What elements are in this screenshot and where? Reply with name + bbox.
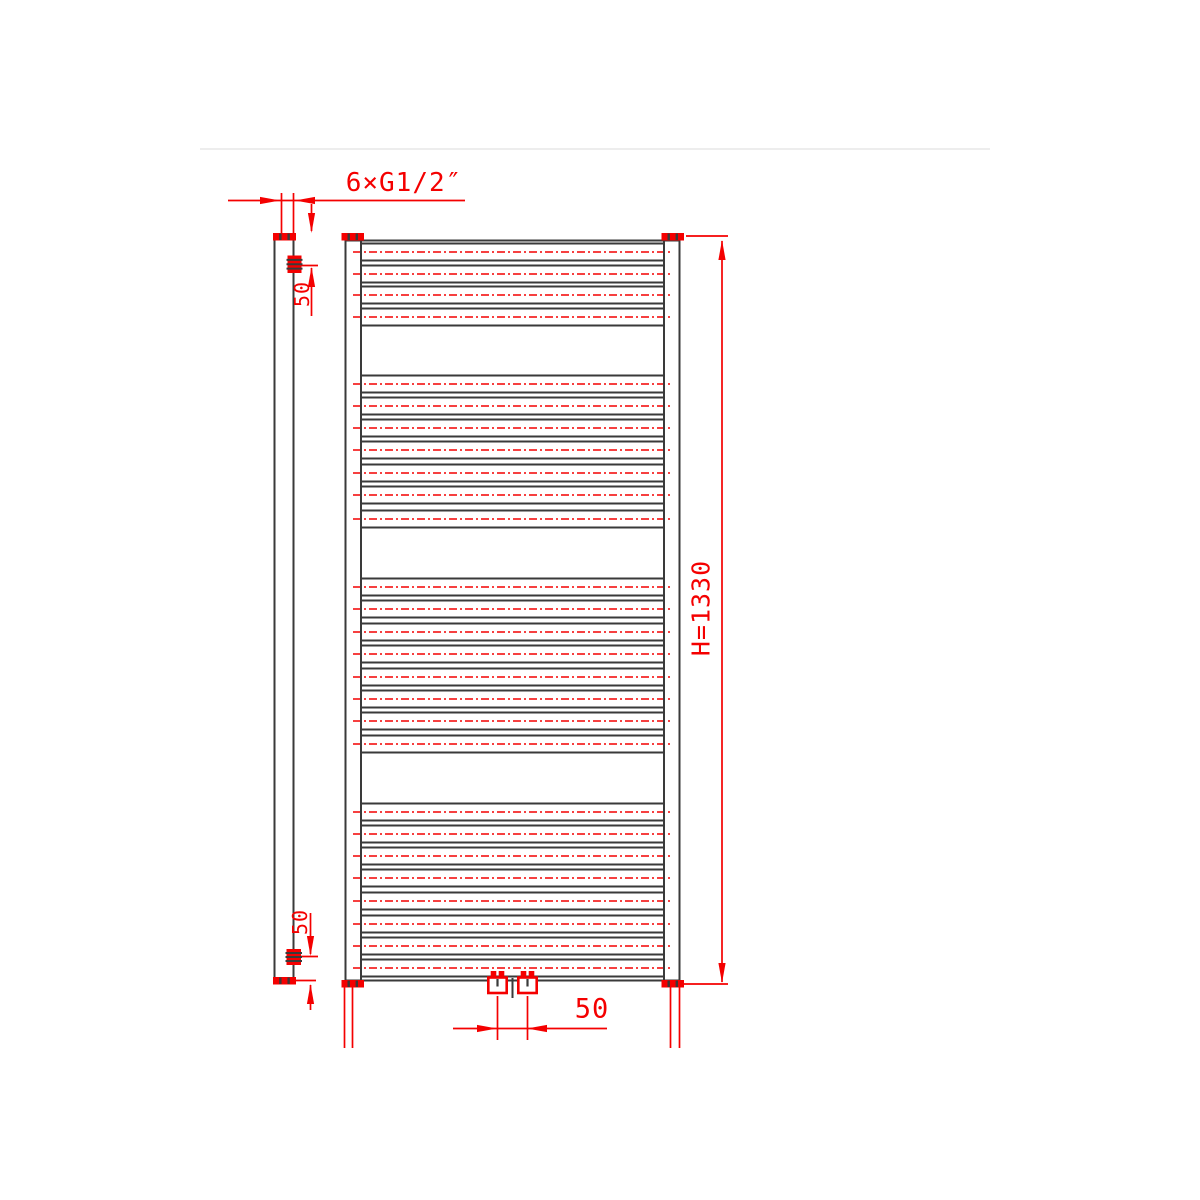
dimension-arrow bbox=[718, 963, 725, 983]
end-cap bbox=[662, 980, 685, 988]
dimension-arrow bbox=[527, 1025, 547, 1032]
thread-spec-label: 6×G1/2″ bbox=[346, 170, 463, 196]
bottom-fitting-tab bbox=[529, 971, 535, 977]
dimension-arrow bbox=[307, 984, 314, 1004]
bottom-fitting-tab bbox=[521, 971, 527, 977]
dimension-arrow bbox=[260, 197, 280, 204]
dimension-arrow bbox=[718, 240, 725, 260]
height-dimension-label: H=1330 bbox=[689, 560, 714, 656]
dimension-arrow bbox=[307, 936, 314, 956]
dimension-arrow bbox=[308, 213, 315, 233]
top-connection-offset-dimension-label: 50 bbox=[292, 281, 312, 307]
dimension-arrow bbox=[295, 197, 315, 204]
dimension-arrow bbox=[477, 1025, 497, 1032]
bottom-fitting-tab bbox=[499, 971, 505, 977]
end-cap bbox=[273, 233, 296, 241]
technical-drawing-canvas: 6×G1/2″ 50 H=1330 50 50 bbox=[0, 0, 1200, 1200]
bottom-fitting-tab bbox=[491, 971, 497, 977]
bottom-connection-offset-dimension-label: 50 bbox=[290, 909, 310, 935]
center-connection-spacing-dimension-label: 50 bbox=[575, 996, 610, 1023]
end-cap bbox=[342, 233, 365, 241]
end-cap bbox=[273, 977, 296, 985]
end-cap bbox=[342, 980, 365, 988]
end-cap bbox=[662, 233, 685, 241]
